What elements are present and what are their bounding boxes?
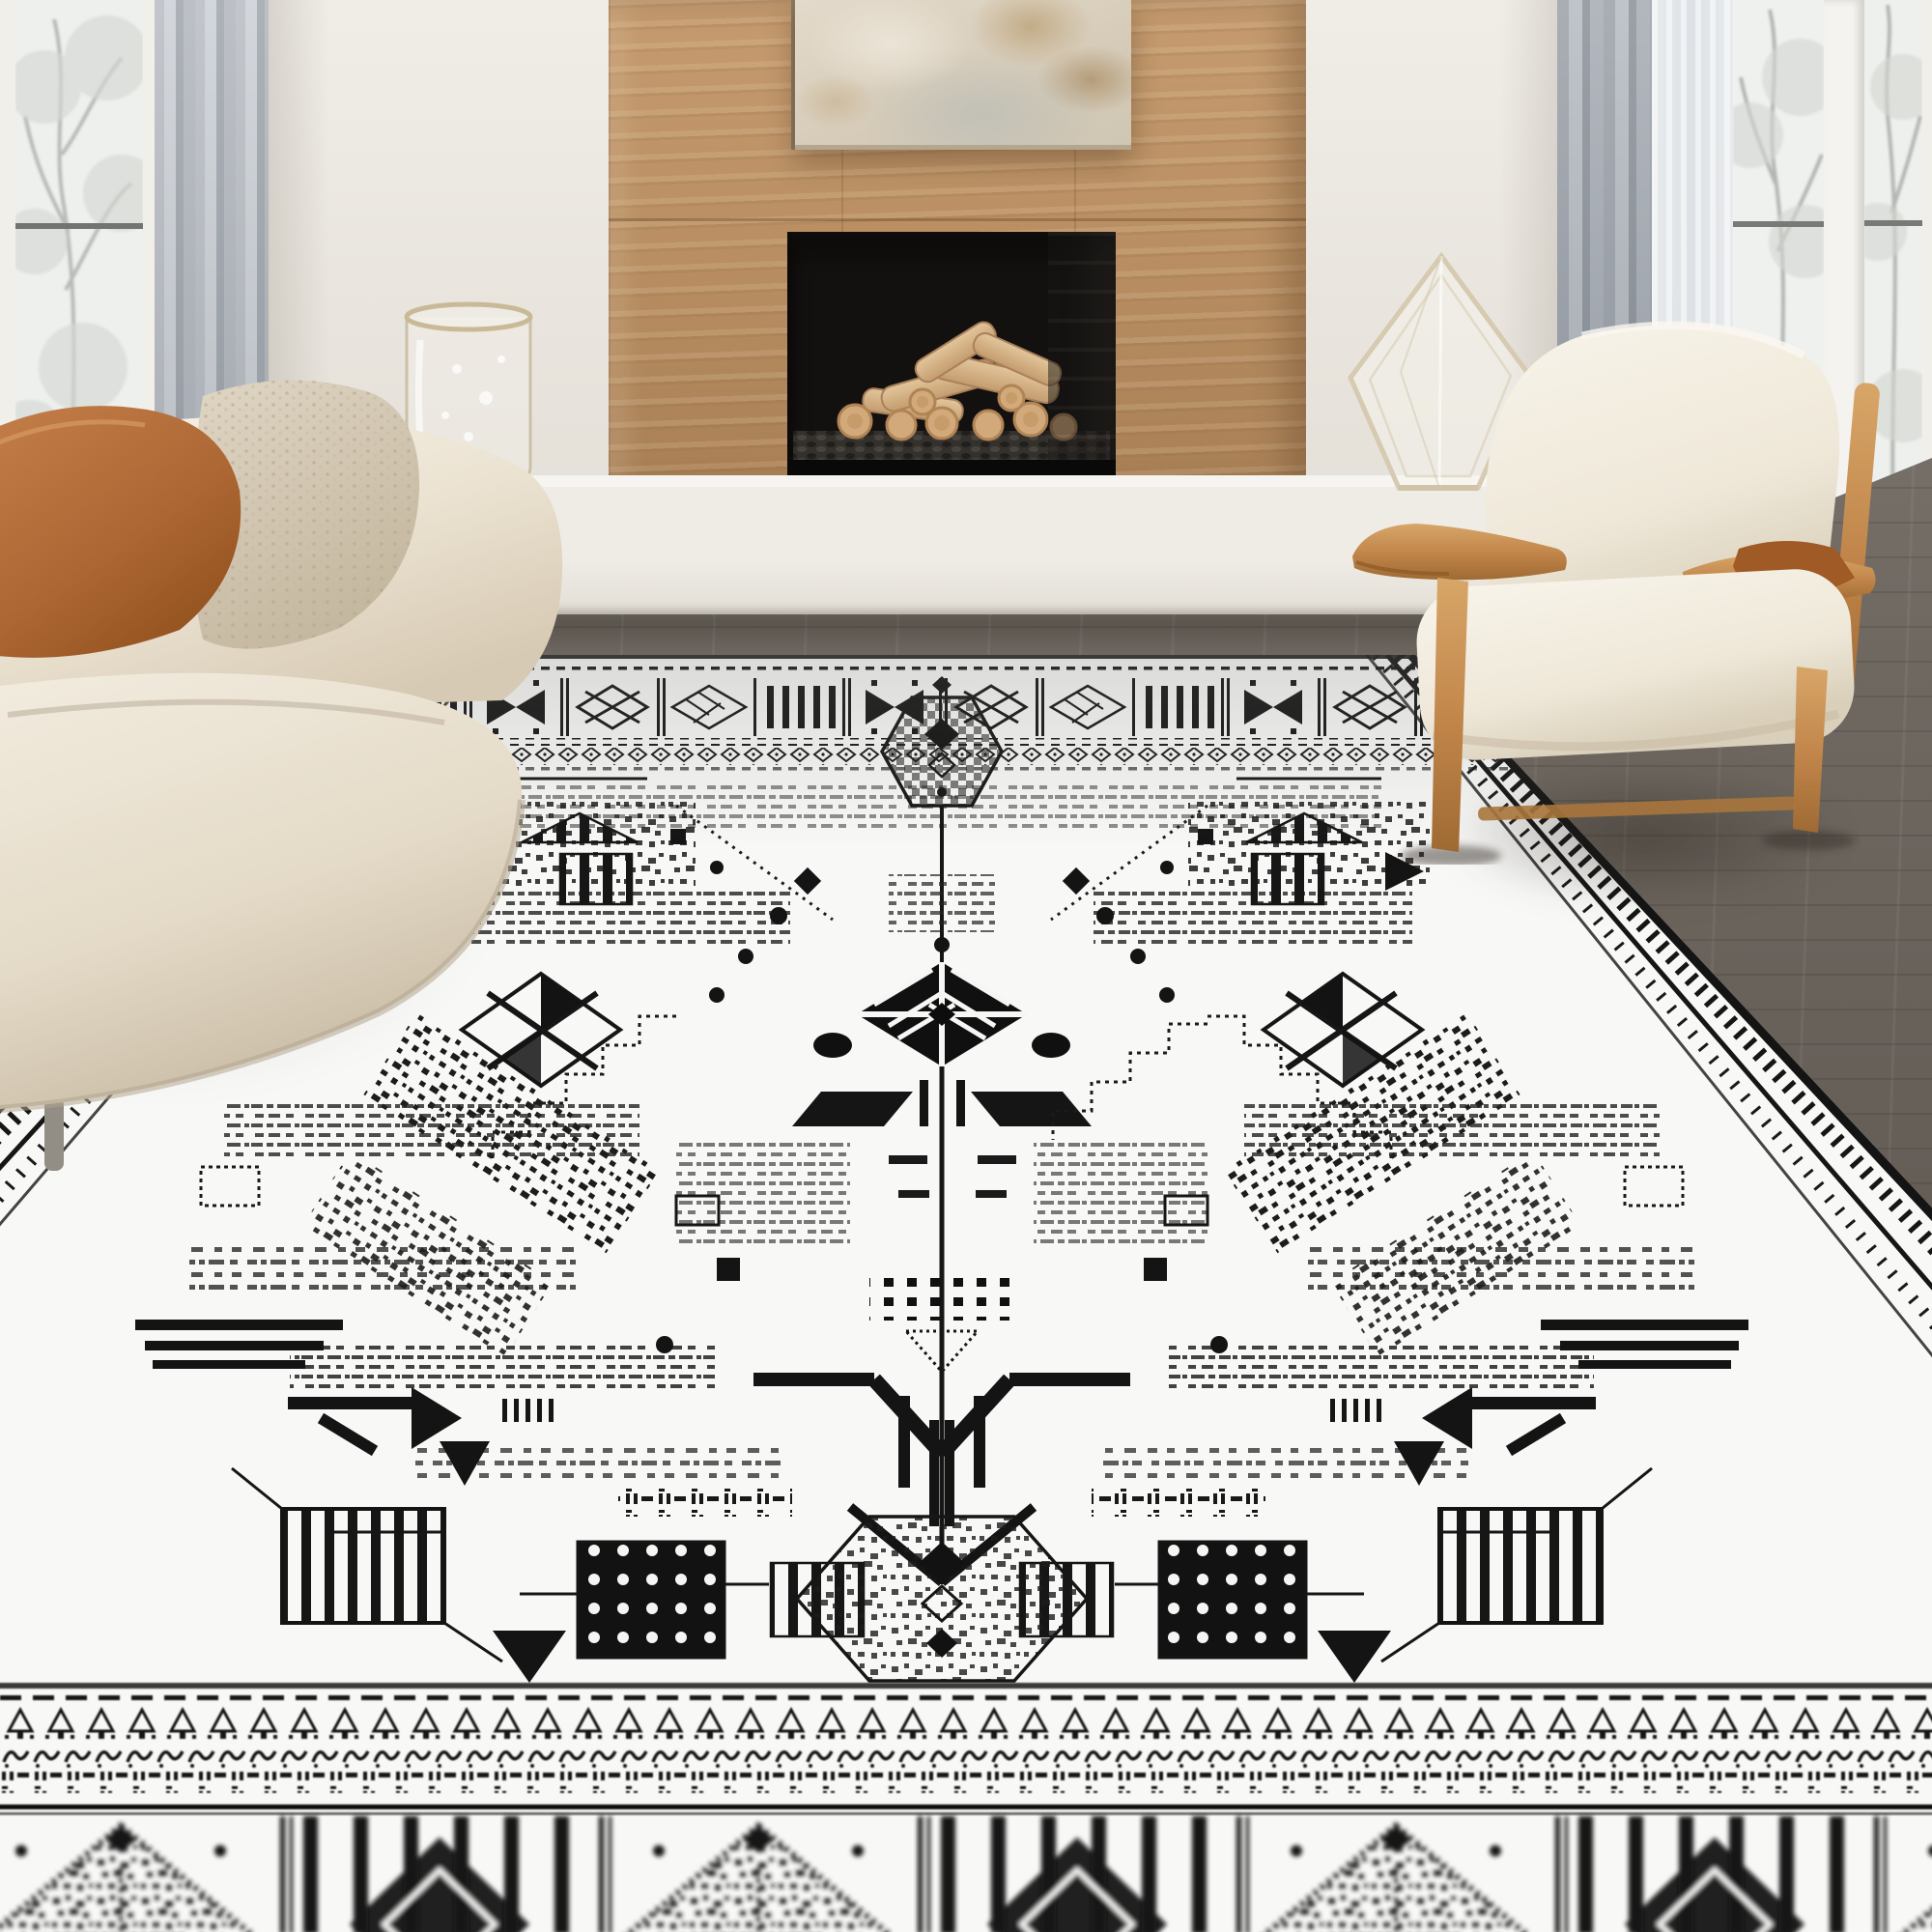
sofa (0, 367, 676, 1179)
armchair (1333, 319, 1932, 865)
armchair-front-right-leg (1793, 667, 1828, 833)
sofa-metal-leg (44, 1097, 64, 1171)
living-room-photo (0, 0, 1932, 1932)
armchair-seat-cushion (1414, 566, 1858, 762)
armchair-stretcher (1478, 796, 1797, 821)
armchair-front-left-leg (1432, 578, 1468, 852)
